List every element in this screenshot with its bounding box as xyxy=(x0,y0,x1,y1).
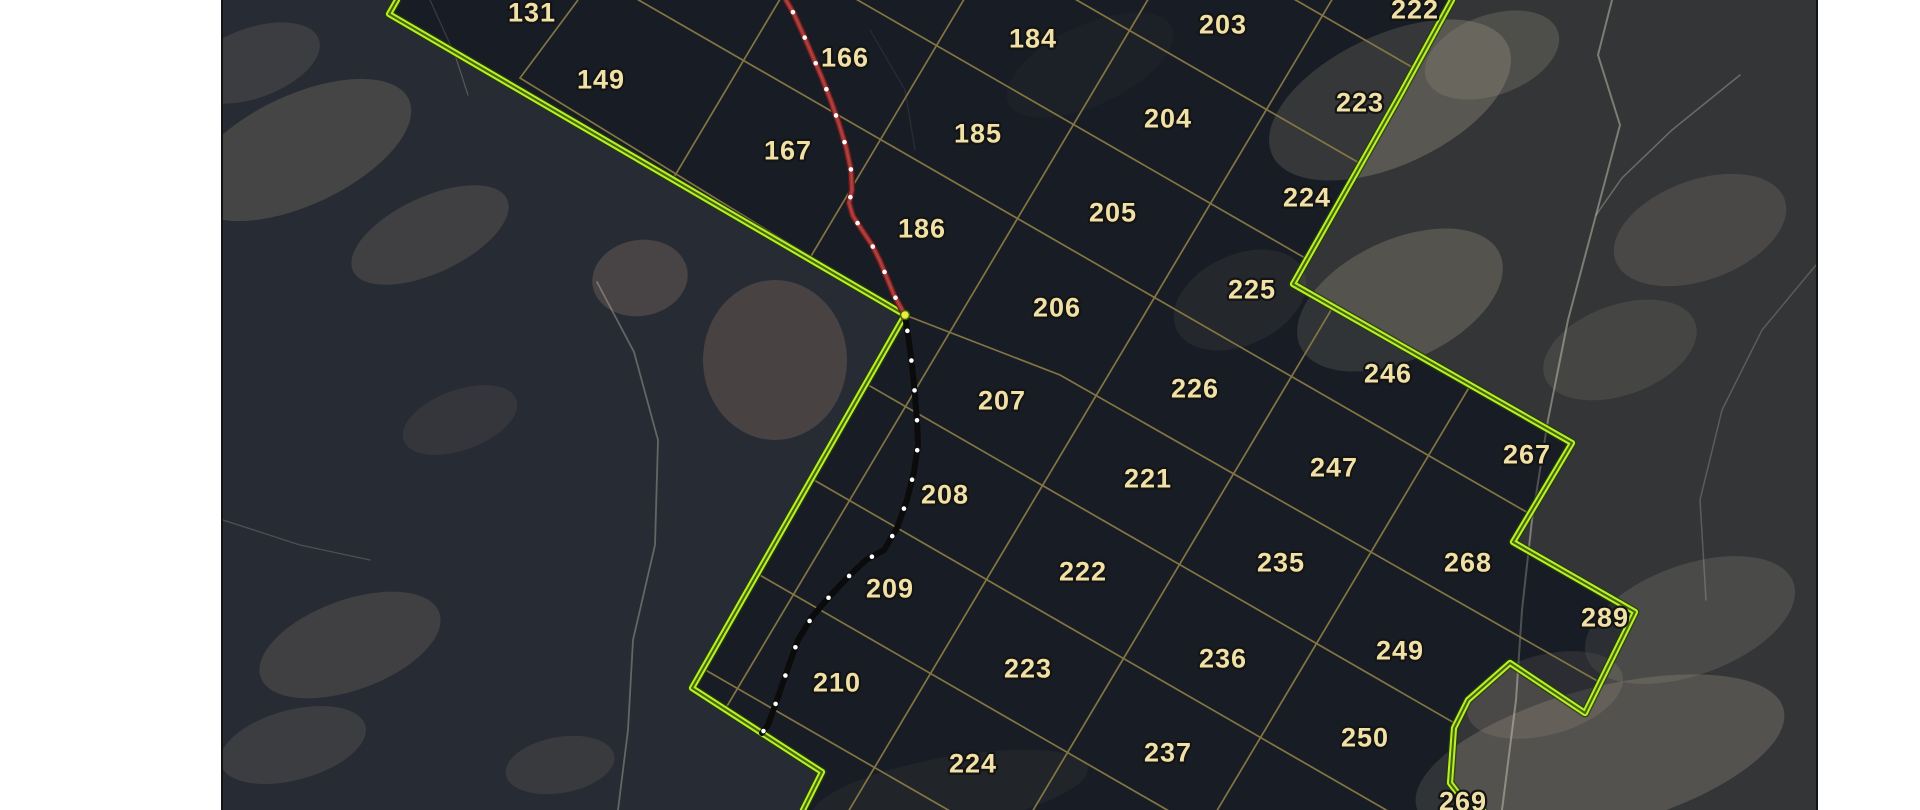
map-page: 1311491661671841851862032042052062072082… xyxy=(0,0,1920,810)
compartment-label-203: 203 xyxy=(1199,10,1247,40)
compartment-label-167: 167 xyxy=(764,136,812,166)
route-junction-marker xyxy=(901,311,910,320)
compartment-label-166: 166 xyxy=(821,43,869,73)
compartment-label-223-n: 223 xyxy=(1336,88,1384,118)
compartment-label-222-s: 222 xyxy=(1059,557,1107,587)
compartment-label-210: 210 xyxy=(813,668,861,698)
compartment-label-247: 247 xyxy=(1310,453,1358,483)
compartment-label-209: 209 xyxy=(866,574,914,604)
compartment-label-204: 204 xyxy=(1144,104,1192,134)
compartment-label-249: 249 xyxy=(1376,636,1424,666)
compartment-label-184: 184 xyxy=(1009,24,1057,54)
compartment-label-236: 236 xyxy=(1199,644,1247,674)
compartment-label-205: 205 xyxy=(1089,198,1137,228)
compartment-label-149: 149 xyxy=(577,65,625,95)
map-viewport[interactable]: 1311491661671841851862032042052062072082… xyxy=(0,0,1920,810)
compartment-label-224-n: 224 xyxy=(1283,183,1331,213)
compartment-label-237: 237 xyxy=(1144,738,1192,768)
compartment-label-186: 186 xyxy=(898,214,946,244)
compartment-label-226: 226 xyxy=(1171,374,1219,404)
compartment-label-223-s: 223 xyxy=(1004,654,1052,684)
left-page-margin xyxy=(0,0,223,810)
compartment-label-268: 268 xyxy=(1444,548,1492,578)
compartment-label-246: 246 xyxy=(1364,359,1412,389)
compartment-label-222-n: 222 xyxy=(1391,0,1439,25)
compartment-label-221: 221 xyxy=(1124,464,1172,494)
compartment-label-235: 235 xyxy=(1257,548,1305,578)
compartment-label-289: 289 xyxy=(1581,603,1629,633)
right-page-margin xyxy=(1816,0,1920,810)
compartment-label-206: 206 xyxy=(1033,293,1081,323)
compartment-label-225: 225 xyxy=(1228,275,1276,305)
compartment-label-224-s: 224 xyxy=(949,749,997,779)
compartment-label-208: 208 xyxy=(921,480,969,510)
compartment-label-250: 250 xyxy=(1341,723,1389,753)
compartment-label-207: 207 xyxy=(978,386,1026,416)
compartment-label-185: 185 xyxy=(954,119,1002,149)
compartment-label-269: 269 xyxy=(1439,787,1487,810)
compartment-label-131: 131 xyxy=(508,0,556,28)
compartment-label-267: 267 xyxy=(1503,440,1551,470)
satellite-imagery: 1311491661671841851862032042052062072082… xyxy=(0,0,1920,810)
